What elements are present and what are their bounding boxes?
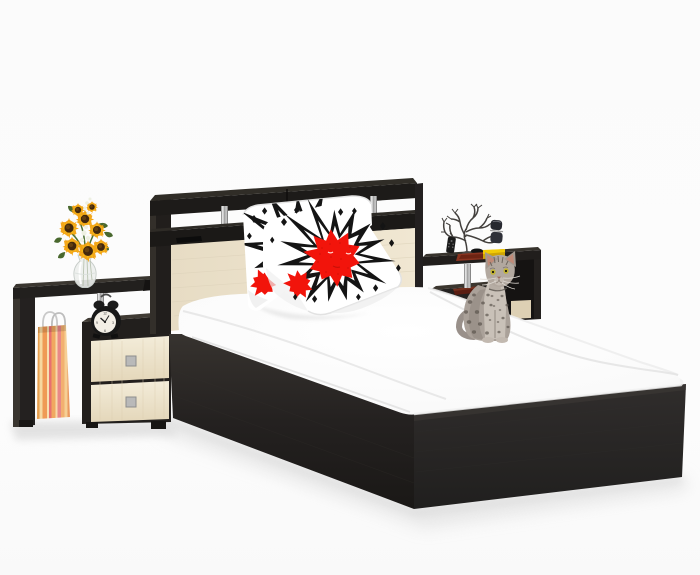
svg-text:9: 9 bbox=[96, 321, 98, 325]
svg-text:6: 6 bbox=[104, 329, 106, 333]
svg-text:3: 3 bbox=[112, 321, 114, 325]
svg-text:12: 12 bbox=[103, 312, 107, 316]
